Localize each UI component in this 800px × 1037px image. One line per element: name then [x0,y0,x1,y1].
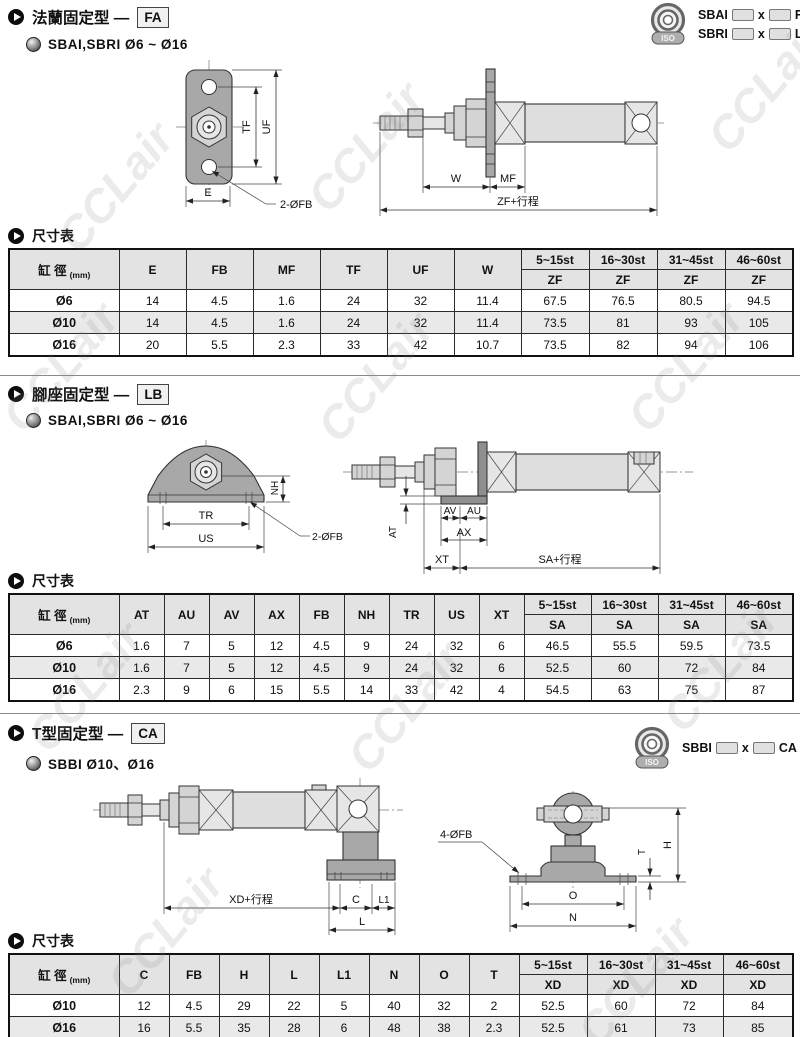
value-cell: 22 [269,995,319,1017]
dim-header-cell: W [454,249,521,290]
value-cell: 4.5 [299,657,344,679]
dim-header-cell: MF [253,249,320,290]
value-cell: 5 [209,657,254,679]
bore-unit: (mm) [70,975,91,985]
t-bracket-cylinder-side-drawing: XD+行程 C L1 L [88,772,413,944]
value-cell: 32 [434,635,479,657]
dim-label-tf: TF [241,120,253,134]
value-cell: 61 [587,1017,655,1037]
flange-front-drawing: TF UF E 2-ØFB [150,54,380,226]
section-arrow-icon [8,573,24,589]
dim-label-av: AV [444,506,457,517]
dim-header-cell: T [469,954,519,995]
dim-header-cell: TF [320,249,387,290]
value-cell: 20 [119,334,186,357]
value-cell: 55.5 [591,635,658,657]
dim-label-sa-stroke: SA+行程 [538,553,581,566]
value-cell: 4 [479,679,524,702]
brand-logo: ISO [628,726,676,770]
dim-header-cell: XT [479,594,524,635]
dim-header-cell: L [269,954,319,995]
value-cell: 93 [657,312,725,334]
mount-code-box: FA [137,7,168,28]
order-sep: x [758,25,765,43]
value-cell: 2.3 [469,1017,519,1037]
stroke-header-cell: 16~30st [587,954,655,975]
value-cell: 94 [657,334,725,357]
order-sep: x [742,739,749,757]
mount-code-box: LB [137,384,169,405]
dim-label-ax: AX [457,527,472,539]
bore-label: 缸 徑 [38,264,66,278]
value-cell: 24 [320,312,387,334]
section-title-text: T型固定型 — [32,722,123,744]
order-model: SBRI [698,25,728,43]
value-cell: 6 [319,1017,369,1037]
stroke-sub-cell: ZF [657,270,725,290]
cylinder-parts [100,785,395,880]
order-line: SBAI x FA [698,6,800,24]
value-cell: 73 [655,1017,723,1037]
stroke-header-cell: 5~15st [524,594,591,615]
table-row: Ø16 16 5.5 35 28 6 48 38 2.3 52.5 61 73 … [9,1017,793,1037]
bore-header-cell: 缸 徑(mm) [9,594,119,635]
dim-label-n: N [569,912,577,924]
value-cell: 12 [254,635,299,657]
section-arrow-icon [8,933,24,949]
table-heading-text: 尺寸表 [32,571,74,591]
section-divider [0,375,800,376]
value-cell: 105 [725,312,793,334]
value-cell: 9 [344,635,389,657]
order-model: SBBI [682,739,712,757]
stroke-header-cell: 5~15st [521,249,589,270]
value-cell: 15 [254,679,299,702]
order-lines: SBBI x CA [682,739,797,757]
order-mount: CA [779,739,797,757]
value-cell: 28 [269,1017,319,1037]
stroke-header-cell: 46~60st [723,954,793,975]
order-mount: LB [795,25,800,43]
foot-bracket-drawing: NH TR US 2-ØFB [118,428,353,573]
value-cell: 84 [725,657,793,679]
model-range-subtitle-fa: SBAI,SBRI Ø6 ~ Ø16 [26,37,188,52]
dim-label-holes: 2-ØFB [280,199,312,211]
section-arrow-icon [8,9,24,25]
table-heading-text: 尺寸表 [32,226,74,246]
order-line: SBRI x LB [698,25,800,43]
logo-iso-text: ISO [661,34,675,43]
section-title-lb: 腳座固定型 — LB [8,383,169,405]
stroke-sub-cell: ZF [521,270,589,290]
table-row: Ø16 20 5.5 2.3 33 42 10.7 73.5 82 94 106 [9,334,793,357]
value-cell: 84 [723,995,793,1017]
value-cell: 7 [164,657,209,679]
table-row: Ø6 1.6 7 5 12 4.5 9 24 32 6 46.5 55.5 59… [9,635,793,657]
value-cell: 33 [389,679,434,702]
bore-header-cell: 缸 徑(mm) [9,954,119,995]
dimension-table-fa-wrap: 缸 徑(mm) E FB MF TF UF W 5~15st 16~30st 3… [8,248,794,357]
dim-label-nh: NH [270,481,281,495]
stroke-header-cell: 31~45st [655,954,723,975]
value-cell: 1.6 [119,657,164,679]
section-title-text: 腳座固定型 — [32,383,129,405]
dim-header-cell: AT [119,594,164,635]
dimension-table-fa: 缸 徑(mm) E FB MF TF UF W 5~15st 16~30st 3… [8,248,794,357]
dim-label-tr: TR [199,510,214,522]
stroke-sub-cell: XD [655,975,723,995]
dimension-table-ca: 缸 徑(mm) C FB H L L1 N O T 5~15st 16~30st… [8,953,794,1037]
value-cell: 24 [389,635,434,657]
dim-header-cell: N [369,954,419,995]
value-cell: 32 [419,995,469,1017]
bore-label: 缸 徑 [38,969,66,983]
value-cell: 32 [434,657,479,679]
value-cell: 5 [209,635,254,657]
value-cell: 106 [725,334,793,357]
brand-logo: ISO [644,2,692,46]
dim-header-cell: FB [186,249,253,290]
value-cell: 35 [219,1017,269,1037]
size-field-box [732,28,754,40]
stroke-header-cell: 31~45st [658,594,725,615]
model-range-subtitle-lb: SBAI,SBRI Ø6 ~ Ø16 [26,413,188,428]
stroke-sub-cell: ZF [725,270,793,290]
value-cell: 7 [164,635,209,657]
dim-label-e: E [204,187,211,199]
stroke-field-box [769,9,791,21]
bore-cell: Ø10 [9,312,119,334]
bore-cell: Ø6 [9,290,119,312]
value-cell: 11.4 [454,312,521,334]
order-lines: SBAI x FA SBRI x LB [698,6,800,43]
value-cell: 14 [119,312,186,334]
value-cell: 5.5 [169,1017,219,1037]
value-cell: 38 [419,1017,469,1037]
value-cell: 33 [320,334,387,357]
model-range-text: SBBI Ø10、Ø16 [48,753,155,773]
table-heading-lb: 尺寸表 [8,571,74,591]
model-range-text: SBAI,SBRI Ø6 ~ Ø16 [48,37,188,52]
value-cell: 4.5 [299,635,344,657]
value-cell: 2.3 [253,334,320,357]
value-cell: 87 [725,679,793,702]
stroke-sub-cell: SA [524,615,591,635]
value-cell: 85 [723,1017,793,1037]
bore-unit: (mm) [70,615,91,625]
value-cell: 24 [320,290,387,312]
value-cell: 52.5 [519,1017,587,1037]
section-arrow-icon [8,228,24,244]
stroke-sub-cell: XD [519,975,587,995]
table-row: Ø6 14 4.5 1.6 24 32 11.4 67.5 76.5 80.5 … [9,290,793,312]
dim-header-cell: FB [299,594,344,635]
value-cell: 32 [387,290,454,312]
value-cell: 4.5 [186,290,253,312]
value-cell: 73.5 [521,334,589,357]
dimension-table-lb: 缸 徑(mm) AT AU AV AX FB NH TR US XT 5~15s… [8,593,794,702]
value-cell: 76.5 [589,290,657,312]
table-heading-ca: 尺寸表 [8,931,74,951]
value-cell: 40 [369,995,419,1017]
value-cell: 75 [658,679,725,702]
t-bracket-front-drawing: 4-ØFB T H O N [418,788,708,940]
value-cell: 12 [119,995,169,1017]
dim-label-xd-stroke: XD+行程 [229,893,273,906]
stroke-header-cell: 46~60st [725,249,793,270]
value-cell: 4.5 [169,995,219,1017]
table-row: Ø16 2.3 9 6 15 5.5 14 33 42 4 54.5 63 75… [9,679,793,702]
stroke-header-cell: 16~30st [589,249,657,270]
section-title-text: 法蘭固定型 — [32,6,129,28]
value-cell: 81 [589,312,657,334]
value-cell: 6 [479,657,524,679]
dim-label-at: AT [388,526,399,538]
value-cell: 46.5 [524,635,591,657]
value-cell: 1.6 [253,290,320,312]
table-heading-fa: 尺寸表 [8,226,74,246]
dim-label-h: H [662,841,674,849]
order-code-block-fa: ISO SBAI x FA SBRI x LB [644,2,800,46]
foot-bracket [148,446,264,504]
size-field-box [716,742,738,754]
dim-label-us: US [198,533,213,545]
dim-header-cell: AX [254,594,299,635]
model-range-subtitle-ca: SBBI Ø10、Ø16 [26,753,155,773]
section-arrow-icon [8,386,24,402]
stroke-field-box [753,742,775,754]
value-cell: 80.5 [657,290,725,312]
dim-header-cell: E [119,249,186,290]
dim-label-mf: MF [500,173,516,185]
bore-cell: Ø16 [9,679,119,702]
value-cell: 12 [254,657,299,679]
dim-header-cell: O [419,954,469,995]
section-title-ca: T型固定型 — CA [8,722,165,744]
bore-cell: Ø10 [9,657,119,679]
order-sep: x [758,6,765,24]
dim-label-l: L [359,916,365,928]
dim-label-c: C [352,894,360,906]
dimension-table-lb-wrap: 缸 徑(mm) AT AU AV AX FB NH TR US XT 5~15s… [8,593,794,702]
dim-label-l1: L1 [378,895,390,906]
order-mount: FA [795,6,800,24]
stroke-sub-cell: XD [587,975,655,995]
mount-code-box: CA [131,723,165,744]
section-arrow-icon [8,725,24,741]
stroke-sub-cell: SA [591,615,658,635]
table-row: Ø10 12 4.5 29 22 5 40 32 2 52.5 60 72 84 [9,995,793,1017]
value-cell: 6 [479,635,524,657]
size-field-box [732,9,754,21]
bore-cell: Ø6 [9,635,119,657]
dim-header-cell: H [219,954,269,995]
table-heading-text: 尺寸表 [32,931,74,951]
value-cell: 54.5 [524,679,591,702]
dim-label-t: T [637,849,648,855]
stroke-sub-cell: XD [723,975,793,995]
dim-header-cell: AU [164,594,209,635]
dim-label-au: AU [467,506,481,517]
dim-header-cell: AV [209,594,254,635]
value-cell: 1.6 [253,312,320,334]
dim-header-cell: NH [344,594,389,635]
value-cell: 16 [119,1017,169,1037]
dim-header-cell: US [434,594,479,635]
value-cell: 59.5 [658,635,725,657]
bore-label: 缸 徑 [38,609,66,623]
value-cell: 11.4 [454,290,521,312]
bullet-ball-icon [26,413,41,428]
value-cell: 48 [369,1017,419,1037]
value-cell: 1.6 [119,635,164,657]
value-cell: 82 [589,334,657,357]
stroke-field-box [769,28,791,40]
dim-header-cell: FB [169,954,219,995]
value-cell: 94.5 [725,290,793,312]
dim-label-uf: UF [261,119,273,134]
value-cell: 5.5 [299,679,344,702]
stroke-sub-cell: ZF [589,270,657,290]
logo-iso-text: ISO [645,758,659,767]
value-cell: 67.5 [521,290,589,312]
bore-cell: Ø10 [9,995,119,1017]
table-row: Ø10 1.6 7 5 12 4.5 9 24 32 6 52.5 60 72 … [9,657,793,679]
cylinder-parts [352,442,660,504]
stroke-sub-cell: SA [658,615,725,635]
value-cell: 4.5 [186,312,253,334]
value-cell: 2.3 [119,679,164,702]
value-cell: 52.5 [519,995,587,1017]
value-cell: 42 [387,334,454,357]
dim-header-cell: C [119,954,169,995]
stroke-header-cell: 5~15st [519,954,587,975]
bore-cell: Ø16 [9,334,119,357]
dim-label-zf-stroke: ZF+行程 [497,195,539,208]
dim-header-cell: L1 [319,954,369,995]
value-cell: 52.5 [524,657,591,679]
value-cell: 24 [389,657,434,679]
catalog-page: CCLair CCLair CCLair CCLair CCLair CCLai… [0,0,800,1037]
section-title-fa: 法蘭固定型 — FA [8,6,169,28]
stroke-header-cell: 31~45st [657,249,725,270]
bullet-ball-icon [26,37,41,52]
dim-label-w: W [451,173,462,185]
value-cell: 29 [219,995,269,1017]
value-cell: 14 [119,290,186,312]
value-cell: 5.5 [186,334,253,357]
dim-label-xt: XT [435,554,449,566]
table-row: Ø10 14 4.5 1.6 24 32 11.4 73.5 81 93 105 [9,312,793,334]
value-cell: 5 [319,995,369,1017]
dimension-table-ca-wrap: 缸 徑(mm) C FB H L L1 N O T 5~15st 16~30st… [8,953,794,1037]
value-cell: 10.7 [454,334,521,357]
value-cell: 73.5 [725,635,793,657]
value-cell: 9 [344,657,389,679]
bore-unit: (mm) [70,270,91,280]
bullet-ball-icon [26,756,41,771]
value-cell: 42 [434,679,479,702]
value-cell: 60 [587,995,655,1017]
value-cell: 72 [655,995,723,1017]
value-cell: 6 [209,679,254,702]
stroke-header-cell: 16~30st [591,594,658,615]
section-divider [0,713,800,714]
value-cell: 72 [658,657,725,679]
flange-cylinder-side-drawing: W MF ZF+行程 [368,56,668,221]
dimension-lines: AT AV AU AX XT SA+行程 [388,476,660,574]
bore-header-cell: 缸 徑(mm) [9,249,119,290]
value-cell: 2 [469,995,519,1017]
dim-label-holes: 4-ØFB [440,829,472,841]
value-cell: 32 [387,312,454,334]
value-cell: 73.5 [521,312,589,334]
value-cell: 63 [591,679,658,702]
bore-cell: Ø16 [9,1017,119,1037]
order-code-block-ca: ISO SBBI x CA [628,726,797,770]
order-line: SBBI x CA [682,739,797,757]
t-bracket [510,793,636,885]
stroke-header-cell: 46~60st [725,594,793,615]
value-cell: 9 [164,679,209,702]
model-range-text: SBAI,SBRI Ø6 ~ Ø16 [48,413,188,428]
value-cell: 14 [344,679,389,702]
value-cell: 60 [591,657,658,679]
foot-cylinder-side-drawing: AT AV AU AX XT SA+行程 [338,428,703,580]
stroke-sub-cell: SA [725,615,793,635]
dim-header-cell: UF [387,249,454,290]
dim-label-o: O [569,890,578,902]
order-model: SBAI [698,6,728,24]
cylinder-parts [380,69,657,177]
dim-header-cell: TR [389,594,434,635]
